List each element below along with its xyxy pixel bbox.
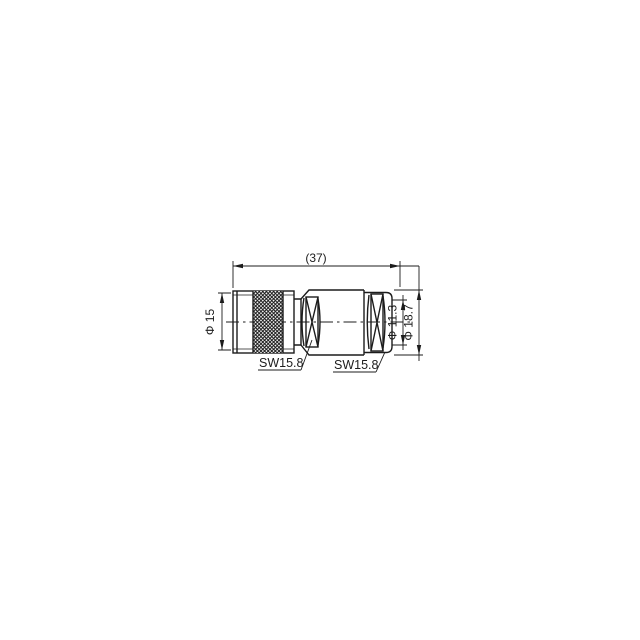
rear-body-diameter-value: Φ 18.7	[402, 304, 416, 341]
overall-length-value: (37)	[305, 251, 326, 265]
knurl-band	[253, 291, 283, 353]
front-diameter-value: Φ 15	[203, 309, 217, 336]
cable-entry-diameter-value: Φ 11.3	[386, 304, 400, 340]
connector-part	[226, 290, 411, 355]
front-wrench-size-value: SW15.8	[259, 356, 304, 370]
drawing-canvas: (37) Φ 15 Φ 11.3 Φ 18.7 SW15.8 SW15.8	[0, 0, 640, 640]
connector-technical-drawing: (37) Φ 15 Φ 11.3 Φ 18.7 SW15.8 SW15.8	[0, 0, 640, 640]
rear-wrench-size-value: SW15.8	[334, 358, 379, 372]
